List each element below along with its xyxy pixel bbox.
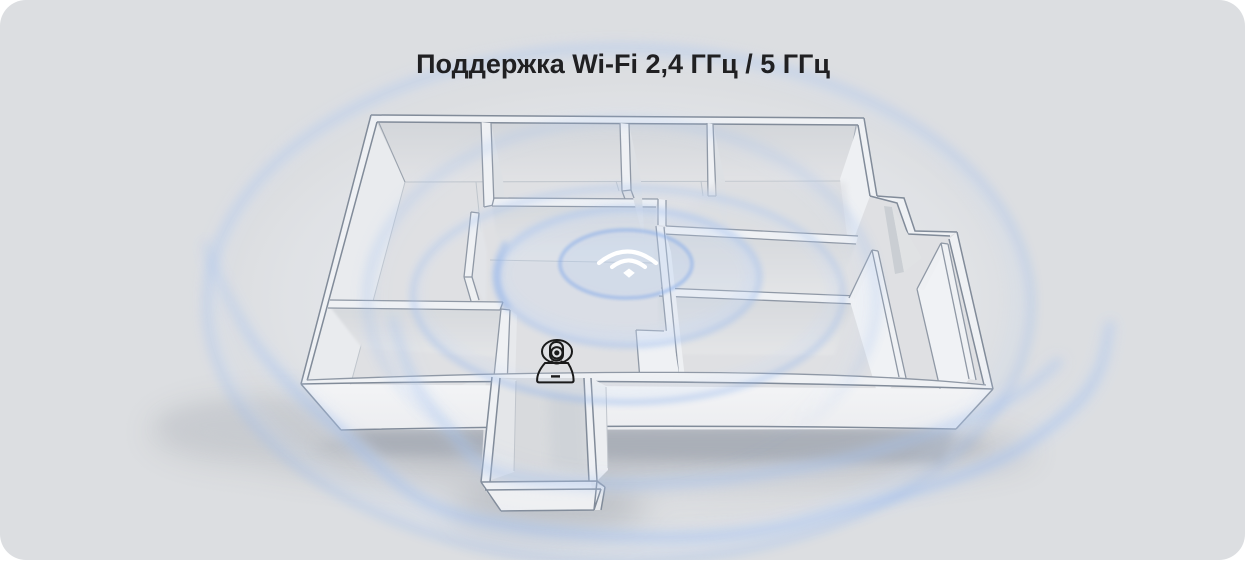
- svg-text:Поддержка Wi-Fi 2,4 ГГц / 5 ГГ: Поддержка Wi-Fi 2,4 ГГц / 5 ГГц: [416, 49, 830, 79]
